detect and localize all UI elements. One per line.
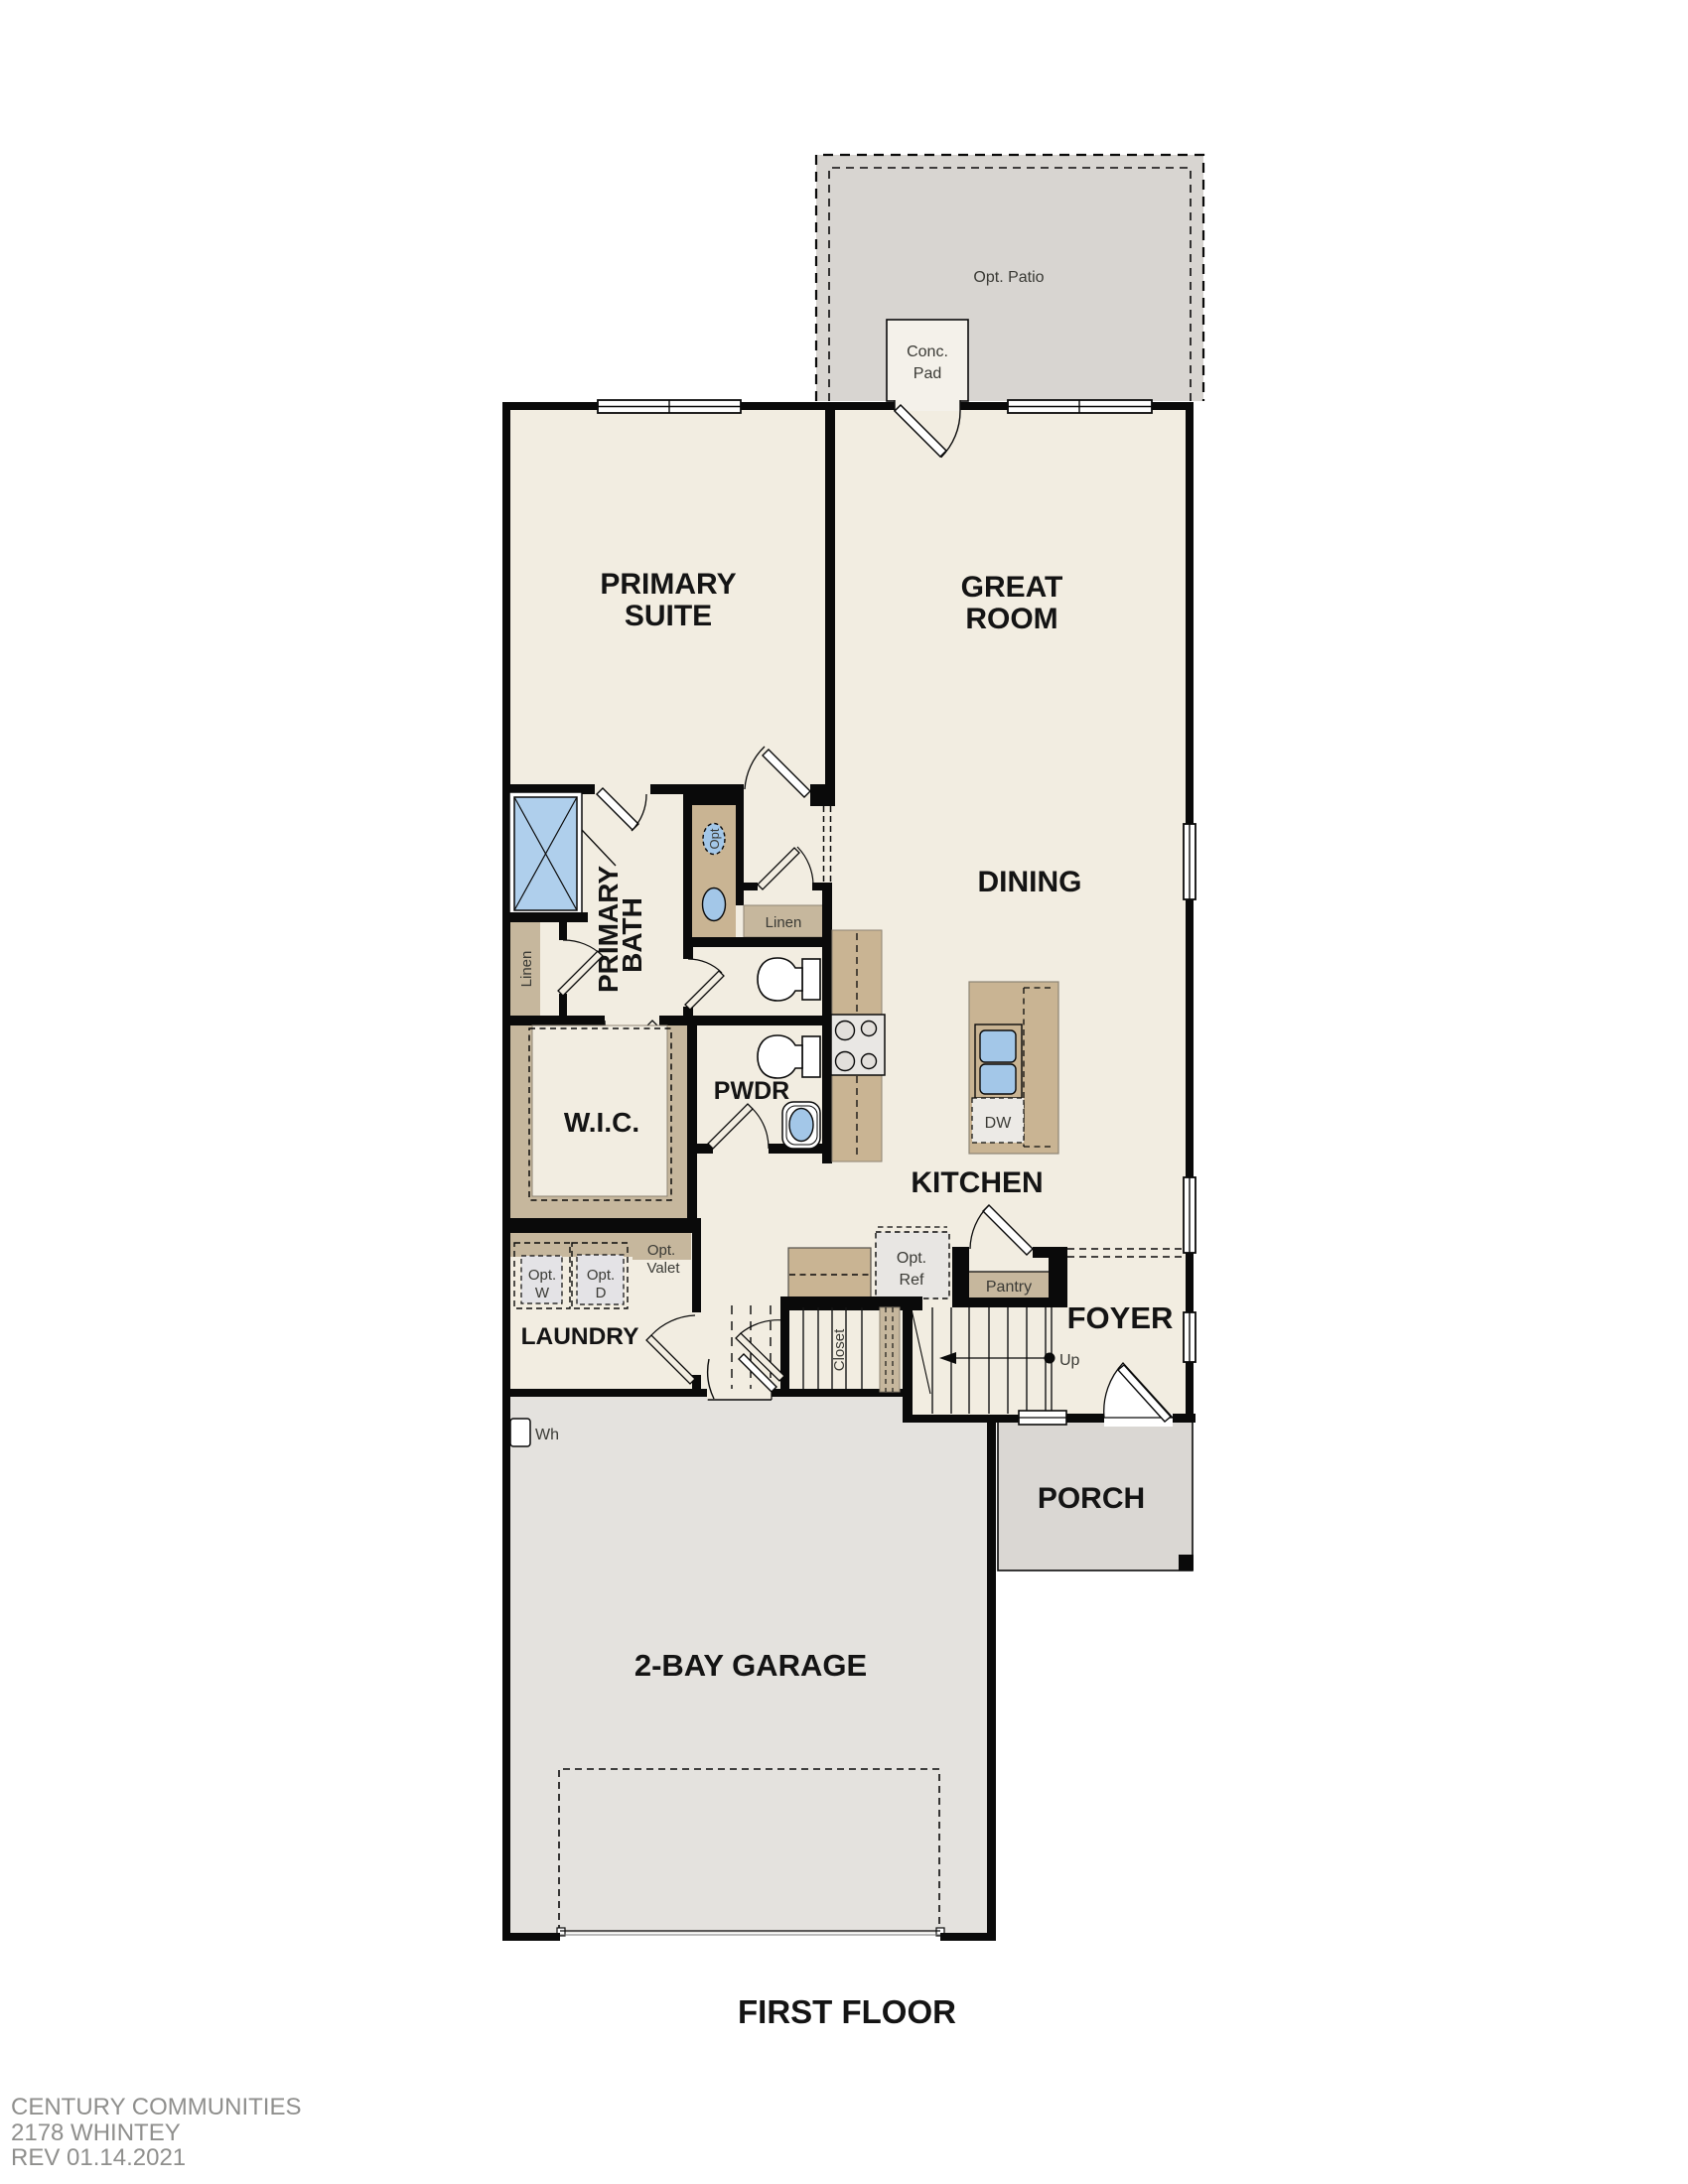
svg-text:DINING: DINING bbox=[978, 866, 1082, 898]
svg-text:Opt.: Opt. bbox=[647, 1242, 675, 1259]
svg-text:DW: DW bbox=[985, 1115, 1013, 1132]
svg-text:Opt: Opt bbox=[707, 828, 722, 849]
svg-text:SUITE: SUITE bbox=[625, 600, 712, 632]
svg-text:D: D bbox=[596, 1285, 607, 1301]
svg-text:ROOM: ROOM bbox=[965, 603, 1057, 635]
svg-text:FOYER: FOYER bbox=[1067, 1300, 1174, 1335]
svg-text:FIRST FLOOR: FIRST FLOOR bbox=[738, 1993, 956, 2030]
svg-text:Opt. Patio: Opt. Patio bbox=[973, 269, 1044, 286]
svg-text:BATH: BATH bbox=[617, 897, 647, 973]
svg-text:Linen: Linen bbox=[518, 951, 535, 988]
svg-text:W: W bbox=[535, 1285, 550, 1301]
svg-text:REV 01.14.2021: REV 01.14.2021 bbox=[11, 2144, 186, 2171]
svg-text:2178 WHINTEY: 2178 WHINTEY bbox=[11, 2119, 181, 2146]
svg-text:CENTURY COMMUNITIES: CENTURY COMMUNITIES bbox=[11, 2094, 301, 2120]
svg-text:Valet: Valet bbox=[646, 1260, 680, 1277]
svg-text:Opt.: Opt. bbox=[897, 1250, 926, 1267]
svg-text:PORCH: PORCH bbox=[1038, 1482, 1145, 1515]
svg-text:PRIMARY: PRIMARY bbox=[600, 568, 736, 601]
svg-text:Wh: Wh bbox=[535, 1427, 559, 1443]
svg-text:Pantry: Pantry bbox=[986, 1279, 1032, 1296]
svg-text:2-BAY GARAGE: 2-BAY GARAGE bbox=[634, 1648, 867, 1683]
svg-text:LAUNDRY: LAUNDRY bbox=[521, 1323, 639, 1350]
svg-text:Up: Up bbox=[1059, 1352, 1080, 1369]
svg-text:Closet: Closet bbox=[831, 1328, 848, 1371]
svg-text:GREAT: GREAT bbox=[961, 571, 1063, 604]
svg-text:KITCHEN: KITCHEN bbox=[911, 1166, 1043, 1199]
svg-text:Opt.: Opt. bbox=[587, 1267, 615, 1284]
svg-text:Opt.: Opt. bbox=[528, 1267, 556, 1284]
svg-text:Ref: Ref bbox=[900, 1272, 924, 1289]
svg-text:Linen: Linen bbox=[766, 914, 802, 931]
svg-text:Pad: Pad bbox=[914, 365, 941, 382]
svg-text:PWDR: PWDR bbox=[714, 1077, 789, 1105]
svg-text:W.I.C.: W.I.C. bbox=[564, 1107, 639, 1138]
svg-text:Conc.: Conc. bbox=[907, 343, 948, 360]
